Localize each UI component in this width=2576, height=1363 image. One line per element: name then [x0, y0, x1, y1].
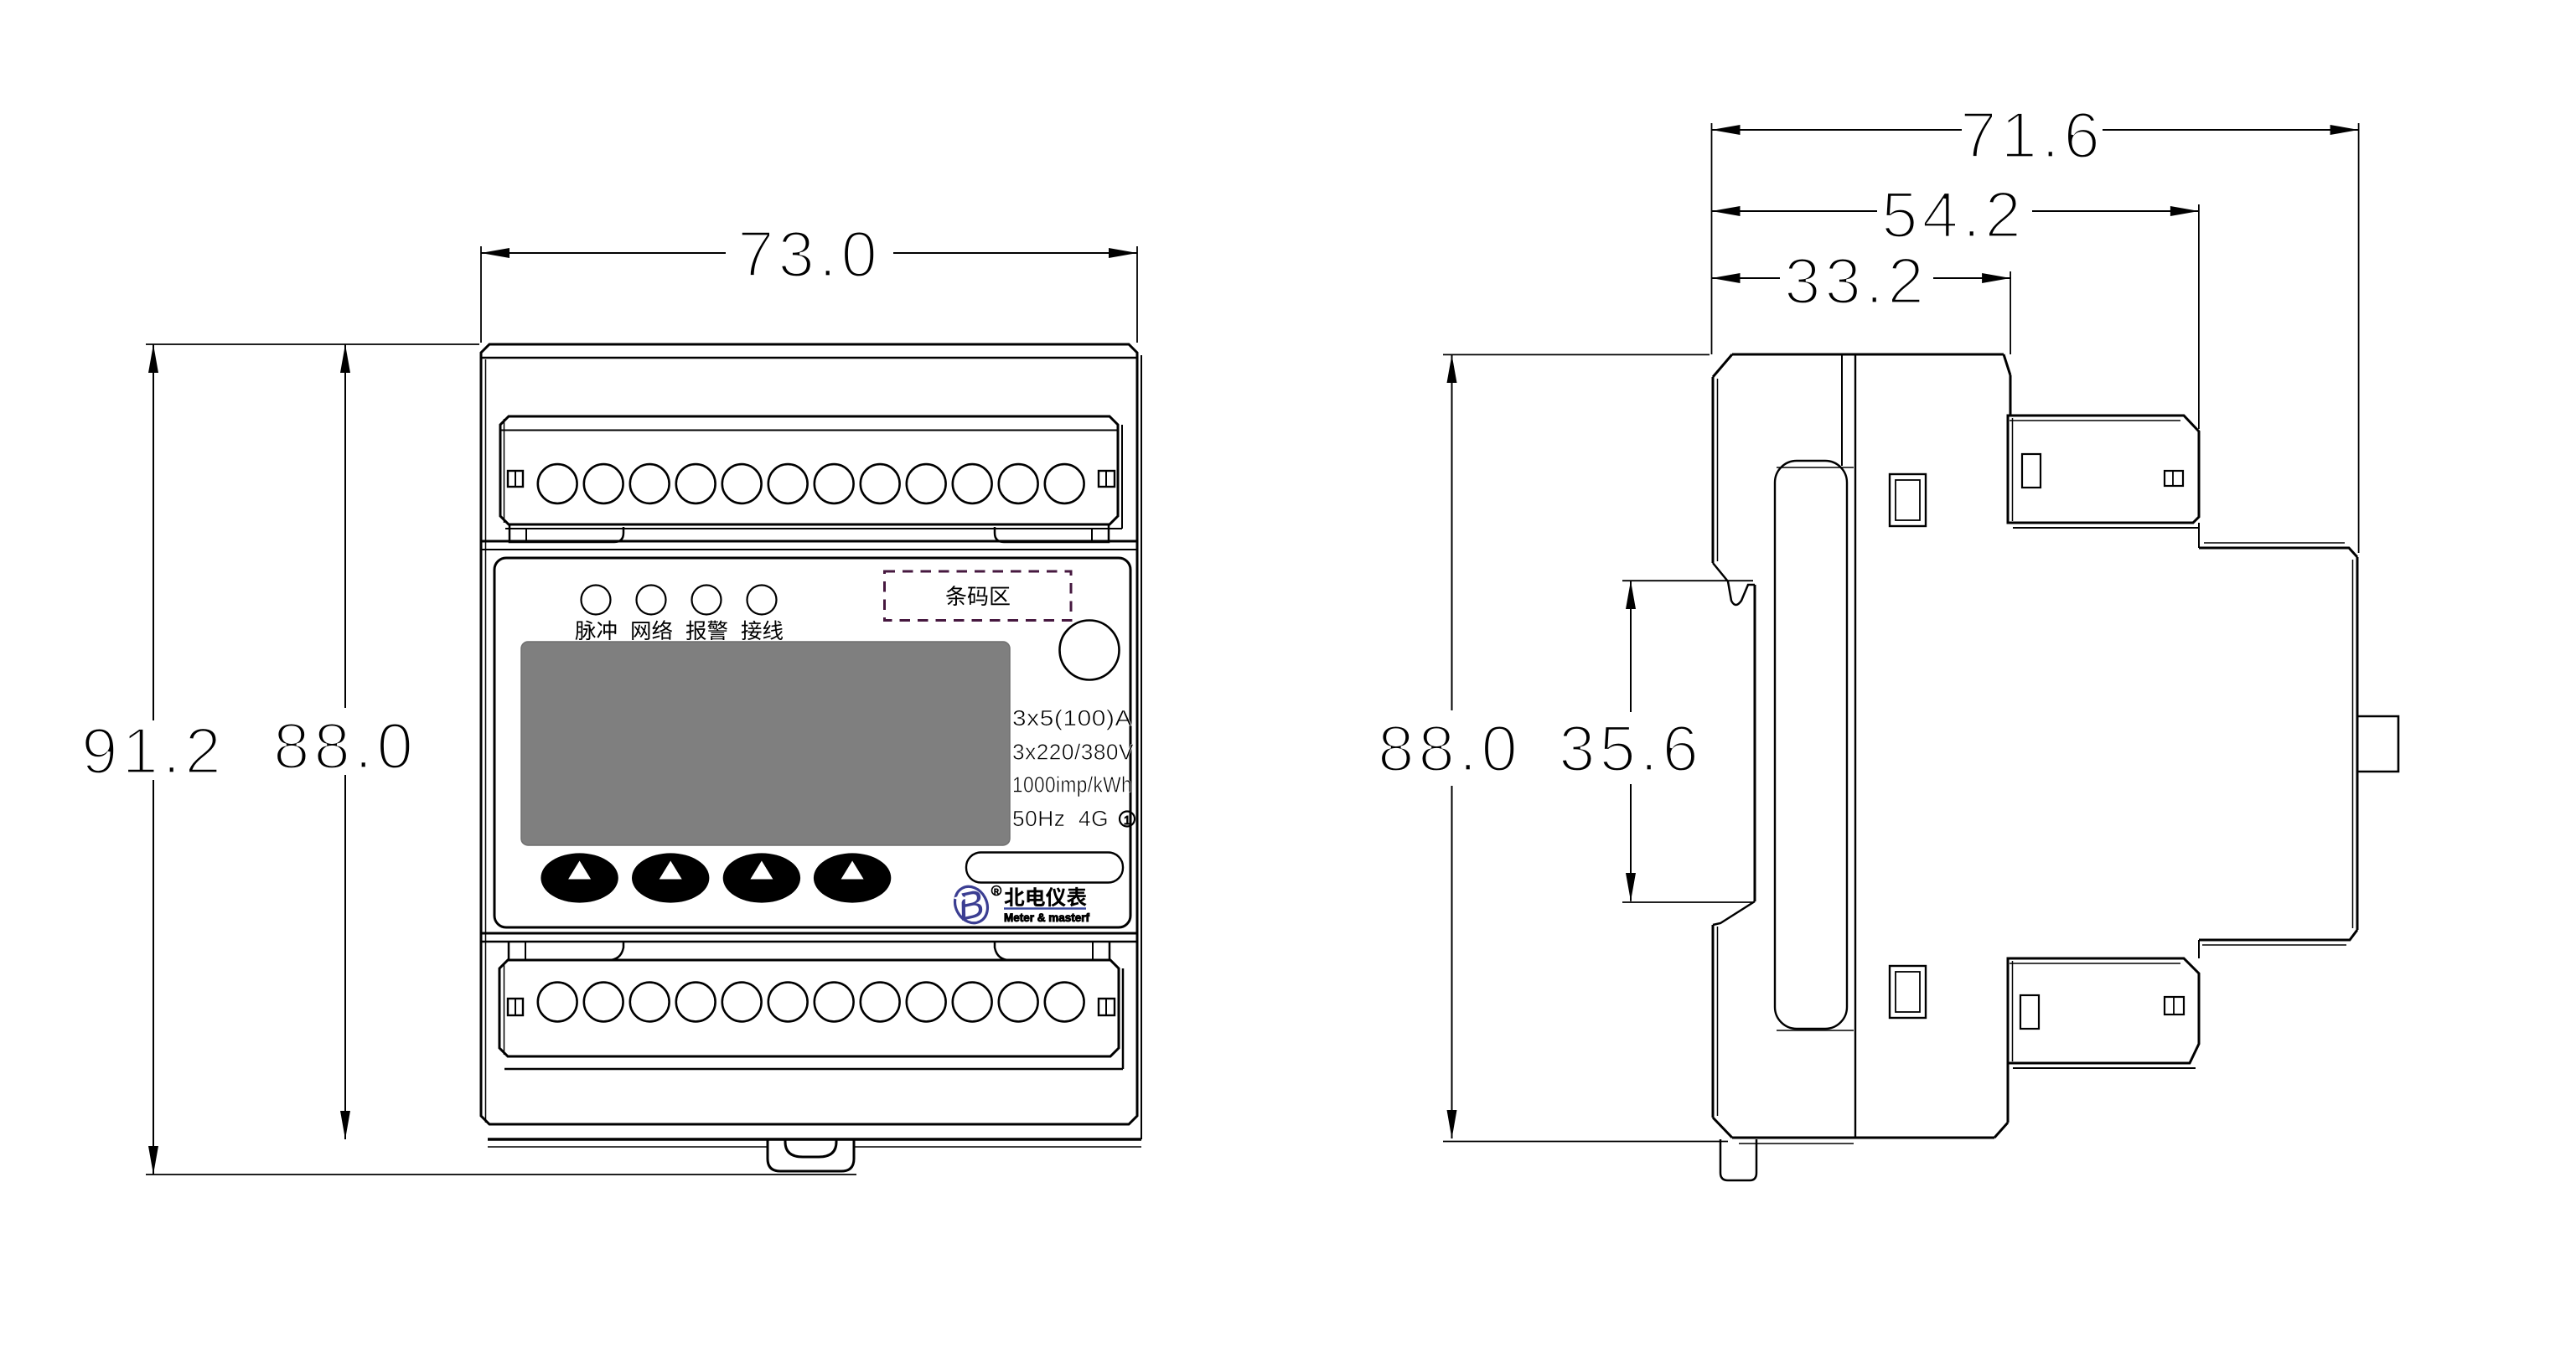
svg-text:1: 1 [1124, 813, 1130, 828]
svg-text:35.6: 35.6 [1559, 711, 1703, 785]
svg-text:91.2: 91.2 [81, 714, 225, 787]
svg-text:54.2: 54.2 [1881, 178, 2025, 251]
svg-text:1000imp/kWh: 1000imp/kWh [1012, 774, 1132, 798]
svg-text:3x220/380V: 3x220/380V [1012, 741, 1134, 765]
svg-text:88.0: 88.0 [273, 709, 417, 782]
svg-text:Meter & masterf: Meter & masterf [1004, 911, 1090, 924]
svg-text:50Hz 4G: 50Hz 4G [1012, 808, 1109, 831]
svg-text:88.0: 88.0 [1378, 711, 1522, 785]
svg-text:3x5(100)A: 3x5(100)A [1012, 707, 1132, 731]
svg-text:71.6: 71.6 [1960, 98, 2104, 172]
svg-text:33.2: 33.2 [1784, 244, 1928, 318]
svg-text:R: R [994, 888, 999, 896]
svg-text:73.0: 73.0 [737, 217, 882, 291]
